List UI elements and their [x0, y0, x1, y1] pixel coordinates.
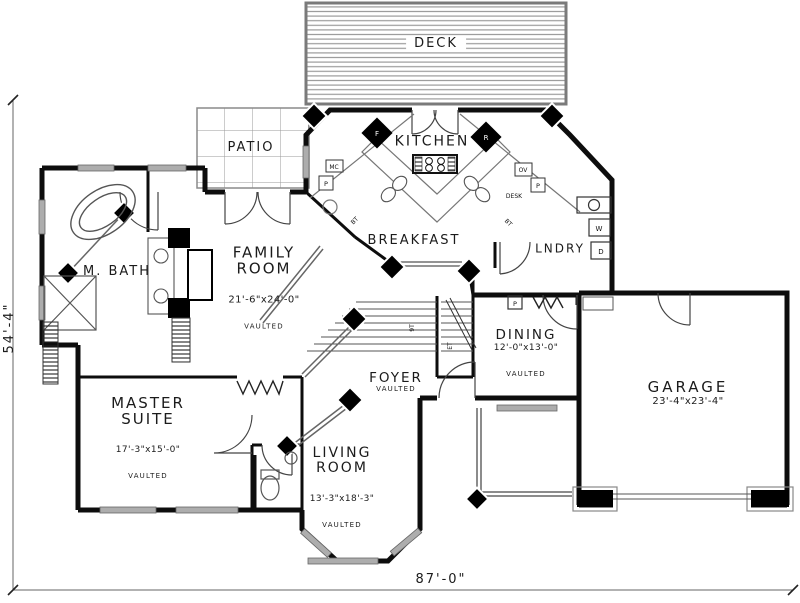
- room-label-living: LIVING ROOM 13'-3"x18'-3" VAULTED: [297, 429, 387, 547]
- counter-mark-left: BT: [350, 215, 361, 226]
- breakfast-half-wall: [400, 262, 462, 266]
- fireplace: [168, 228, 212, 318]
- room-label-deck: DECK: [406, 37, 466, 51]
- desk-label: DESK: [506, 193, 523, 200]
- foyer-note: VAULTED: [369, 386, 423, 394]
- room-label-foyer: FOYER VAULTED: [369, 351, 423, 411]
- room-label-master-bath: M. BATH: [83, 265, 151, 279]
- stair-mark-up: 9T: [409, 324, 416, 332]
- floorplan-linework: F R MC P OV P DESK W D P BT BT 9T ET: [0, 0, 800, 603]
- dimension-height-label: 54'-4": [3, 302, 17, 353]
- floor-plan-page: F R MC P OV P DESK W D P BT BT 9T ET DEC…: [0, 0, 800, 603]
- cooktop: [413, 155, 457, 173]
- pantry-left-label: P: [324, 180, 328, 188]
- dining-dims: 12'-0"x13'-0": [494, 344, 559, 354]
- garage-dims: 23'-4"x23'-4": [648, 397, 729, 408]
- room-label-breakfast: BREAKFAST: [368, 234, 461, 248]
- bathtub: [61, 173, 145, 250]
- family-dims: 21'-6"x24'-0": [209, 296, 319, 307]
- fixture-letters: F R MC P OV P DESK W D P BT BT 9T ET: [324, 130, 604, 350]
- washer-label: W: [596, 225, 603, 233]
- dining-note: VAULTED: [494, 371, 559, 379]
- kitchen-sink: [378, 173, 492, 204]
- living-note: VAULTED: [297, 522, 387, 530]
- range-label: R: [484, 134, 489, 142]
- room-label-laundry: LNDRY: [535, 243, 585, 256]
- room-label-master: MASTER SUITE 17'-3"x15'-0" VAULTED: [98, 378, 198, 498]
- counter-mark-right: BT: [503, 218, 514, 229]
- room-label-family: FAMILY ROOM 21'-6"x24'-0" VAULTED: [209, 228, 319, 349]
- dryer-label: D: [598, 248, 603, 256]
- dimension-width-label: 87'-0": [415, 573, 466, 587]
- closet-pantry-label: P: [513, 300, 517, 308]
- deck-boards: [306, 3, 566, 104]
- microwave-label: MC: [329, 164, 338, 171]
- room-label-kitchen: KITCHEN: [395, 134, 470, 149]
- master-dims: 17'-3"x15'-0": [98, 446, 198, 456]
- linen-closets: [43, 318, 190, 384]
- pantry-right-label: P: [536, 182, 540, 190]
- stair-mark-dn: ET: [447, 342, 454, 350]
- room-label-patio: PATIO: [228, 141, 275, 155]
- master-note: VAULTED: [98, 473, 198, 481]
- family-note: VAULTED: [209, 324, 319, 332]
- fridge-label: F: [375, 130, 379, 138]
- room-label-garage: GARAGE 23'-4"x23'-4": [648, 361, 729, 425]
- room-label-dining: DINING 12'-0"x13'-0" VAULTED: [494, 308, 559, 396]
- oven-label: OV: [519, 167, 529, 174]
- living-dims: 13'-3"x18'-3": [297, 495, 387, 505]
